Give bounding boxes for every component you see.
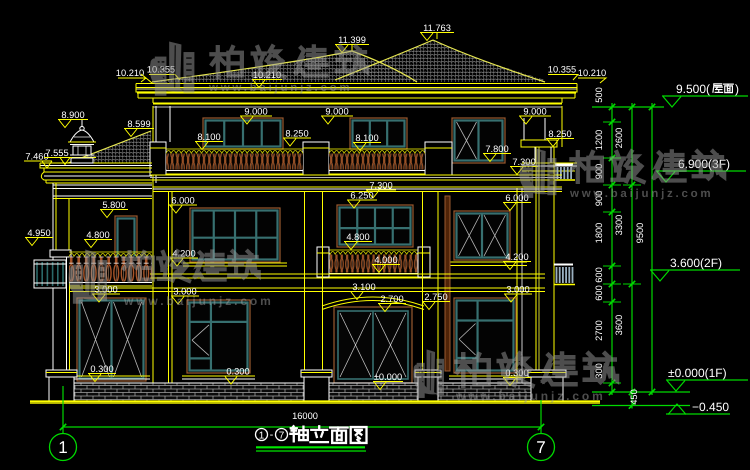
svg-text:9.000: 9.000 [325, 107, 348, 117]
svg-text:7.300: 7.300 [369, 181, 392, 191]
svg-text:2.700: 2.700 [380, 294, 403, 304]
svg-text:±0.000: ±0.000 [374, 372, 402, 382]
svg-text:4.950: 4.950 [27, 228, 50, 238]
svg-text:5.800: 5.800 [102, 200, 125, 210]
svg-text:500: 500 [594, 87, 604, 103]
svg-text:4.000: 4.000 [374, 255, 397, 265]
svg-text:www.baijunjz.com: www.baijunjz.com [123, 294, 274, 308]
svg-text:±0.000(1F): ±0.000(1F) [668, 366, 727, 380]
svg-text:7: 7 [279, 431, 285, 442]
svg-text:1200: 1200 [594, 130, 604, 151]
svg-text:): ) [735, 82, 739, 96]
svg-text:8.100: 8.100 [197, 132, 220, 142]
svg-text:2600: 2600 [614, 128, 624, 149]
svg-text:9.500(: 9.500( [676, 82, 710, 96]
svg-text:2.750: 2.750 [424, 292, 447, 302]
svg-text:11.399: 11.399 [338, 35, 366, 45]
svg-text:www.baijunjz.com: www.baijunjz.com [208, 82, 352, 94]
svg-text:7: 7 [536, 438, 545, 457]
svg-text:0.300: 0.300 [226, 367, 249, 377]
svg-text:0.300: 0.300 [90, 364, 113, 374]
svg-text:7.555: 7.555 [45, 148, 68, 158]
svg-text:10.210: 10.210 [116, 68, 144, 78]
svg-text:−0.450: −0.450 [692, 400, 729, 414]
svg-text:10.210: 10.210 [578, 68, 606, 78]
svg-text:4.200: 4.200 [505, 252, 528, 262]
svg-text:6.000: 6.000 [171, 196, 194, 206]
svg-text:6.250: 6.250 [350, 191, 373, 201]
svg-text:1800: 1800 [594, 223, 604, 244]
svg-text:16000: 16000 [292, 411, 318, 421]
svg-text:8.250: 8.250 [548, 129, 571, 139]
svg-text:600: 600 [594, 267, 604, 283]
svg-text:4.800: 4.800 [86, 230, 109, 240]
svg-text:9.000: 9.000 [244, 107, 267, 117]
svg-text:10.355: 10.355 [548, 65, 576, 75]
svg-text:2700: 2700 [594, 320, 604, 341]
svg-text:www.baijunjz.com: www.baijunjz.com [569, 188, 713, 200]
svg-text:9500: 9500 [635, 223, 645, 244]
svg-text:3600: 3600 [614, 315, 624, 336]
svg-text:8.100: 8.100 [355, 133, 378, 143]
svg-text:www.baijunjz.com: www.baijunjz.com [455, 389, 606, 403]
svg-text:1: 1 [259, 431, 265, 442]
svg-text:-: - [270, 429, 274, 441]
svg-text:8.250: 8.250 [285, 129, 308, 139]
svg-text:7.800: 7.800 [485, 144, 508, 154]
svg-text:3.600(2F): 3.600(2F) [670, 256, 722, 270]
svg-text:600: 600 [594, 285, 604, 301]
svg-text:3.100: 3.100 [352, 282, 375, 292]
svg-text:8.599: 8.599 [127, 119, 150, 129]
svg-text:1: 1 [58, 438, 67, 457]
svg-text:3.000: 3.000 [506, 285, 529, 295]
svg-text:11.763: 11.763 [423, 23, 451, 33]
svg-text:8.900: 8.900 [61, 110, 84, 120]
svg-text:450: 450 [629, 389, 639, 405]
svg-text:3300: 3300 [614, 215, 624, 236]
svg-text:4.800: 4.800 [346, 232, 369, 242]
svg-text:9.000: 9.000 [523, 107, 546, 117]
